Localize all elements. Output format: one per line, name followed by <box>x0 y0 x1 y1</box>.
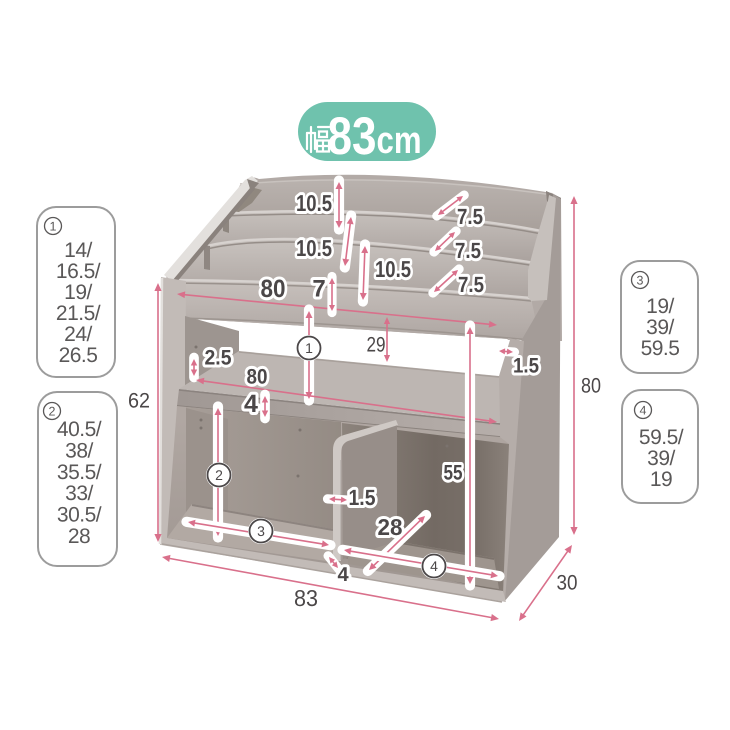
svg-text:4: 4 <box>430 558 438 574</box>
svg-text:38/: 38/ <box>65 439 93 462</box>
svg-text:19: 19 <box>650 468 672 491</box>
svg-text:7.5: 7.5 <box>457 204 483 229</box>
svg-text:24/: 24/ <box>64 323 92 346</box>
svg-text:7.5: 7.5 <box>455 238 481 263</box>
svg-text:10.5: 10.5 <box>296 235 332 261</box>
svg-text:59.5/: 59.5/ <box>639 426 684 449</box>
svg-text:28: 28 <box>68 525 90 548</box>
svg-text:19/: 19/ <box>646 295 674 318</box>
svg-text:21.5/: 21.5/ <box>56 302 101 325</box>
svg-text:2: 2 <box>49 404 56 418</box>
svg-text:19/: 19/ <box>64 281 92 304</box>
svg-text:7.5: 7.5 <box>458 272 484 297</box>
svg-text:cm: cm <box>377 120 422 162</box>
svg-text:55: 55 <box>444 462 463 485</box>
svg-text:80: 80 <box>581 375 601 398</box>
svg-text:59.5: 59.5 <box>641 337 680 360</box>
svg-text:30: 30 <box>557 572 578 595</box>
svg-text:26.5: 26.5 <box>59 344 98 367</box>
svg-text:14/: 14/ <box>64 239 92 262</box>
svg-text:3: 3 <box>257 523 265 539</box>
svg-text:35.5/: 35.5/ <box>57 461 102 484</box>
svg-text:1.5: 1.5 <box>513 355 539 378</box>
svg-text:83: 83 <box>294 585 318 611</box>
svg-text:80: 80 <box>247 366 268 389</box>
svg-text:1: 1 <box>50 219 57 233</box>
svg-text:16.5/: 16.5/ <box>56 260 101 283</box>
svg-text:28: 28 <box>378 514 403 540</box>
svg-text:1.5: 1.5 <box>349 485 376 510</box>
svg-text:80: 80 <box>261 275 286 303</box>
svg-text:7: 7 <box>312 276 325 303</box>
svg-text:62: 62 <box>128 390 150 413</box>
svg-text:4: 4 <box>640 403 647 417</box>
svg-text:83: 83 <box>328 107 377 166</box>
svg-text:4: 4 <box>337 564 349 586</box>
svg-text:4: 4 <box>244 390 258 418</box>
svg-text:39/: 39/ <box>646 316 674 339</box>
svg-text:39/: 39/ <box>647 447 675 470</box>
svg-text:10.5: 10.5 <box>375 256 411 282</box>
svg-text:40.5/: 40.5/ <box>57 418 102 441</box>
svg-text:2.5: 2.5 <box>205 347 232 370</box>
svg-text:3: 3 <box>637 273 644 287</box>
svg-text:2: 2 <box>215 467 223 483</box>
svg-text:1: 1 <box>305 340 313 356</box>
svg-text:30.5/: 30.5/ <box>57 504 102 527</box>
svg-text:29: 29 <box>367 334 386 357</box>
svg-text:33/: 33/ <box>65 482 93 505</box>
svg-text:10.5: 10.5 <box>296 190 332 216</box>
